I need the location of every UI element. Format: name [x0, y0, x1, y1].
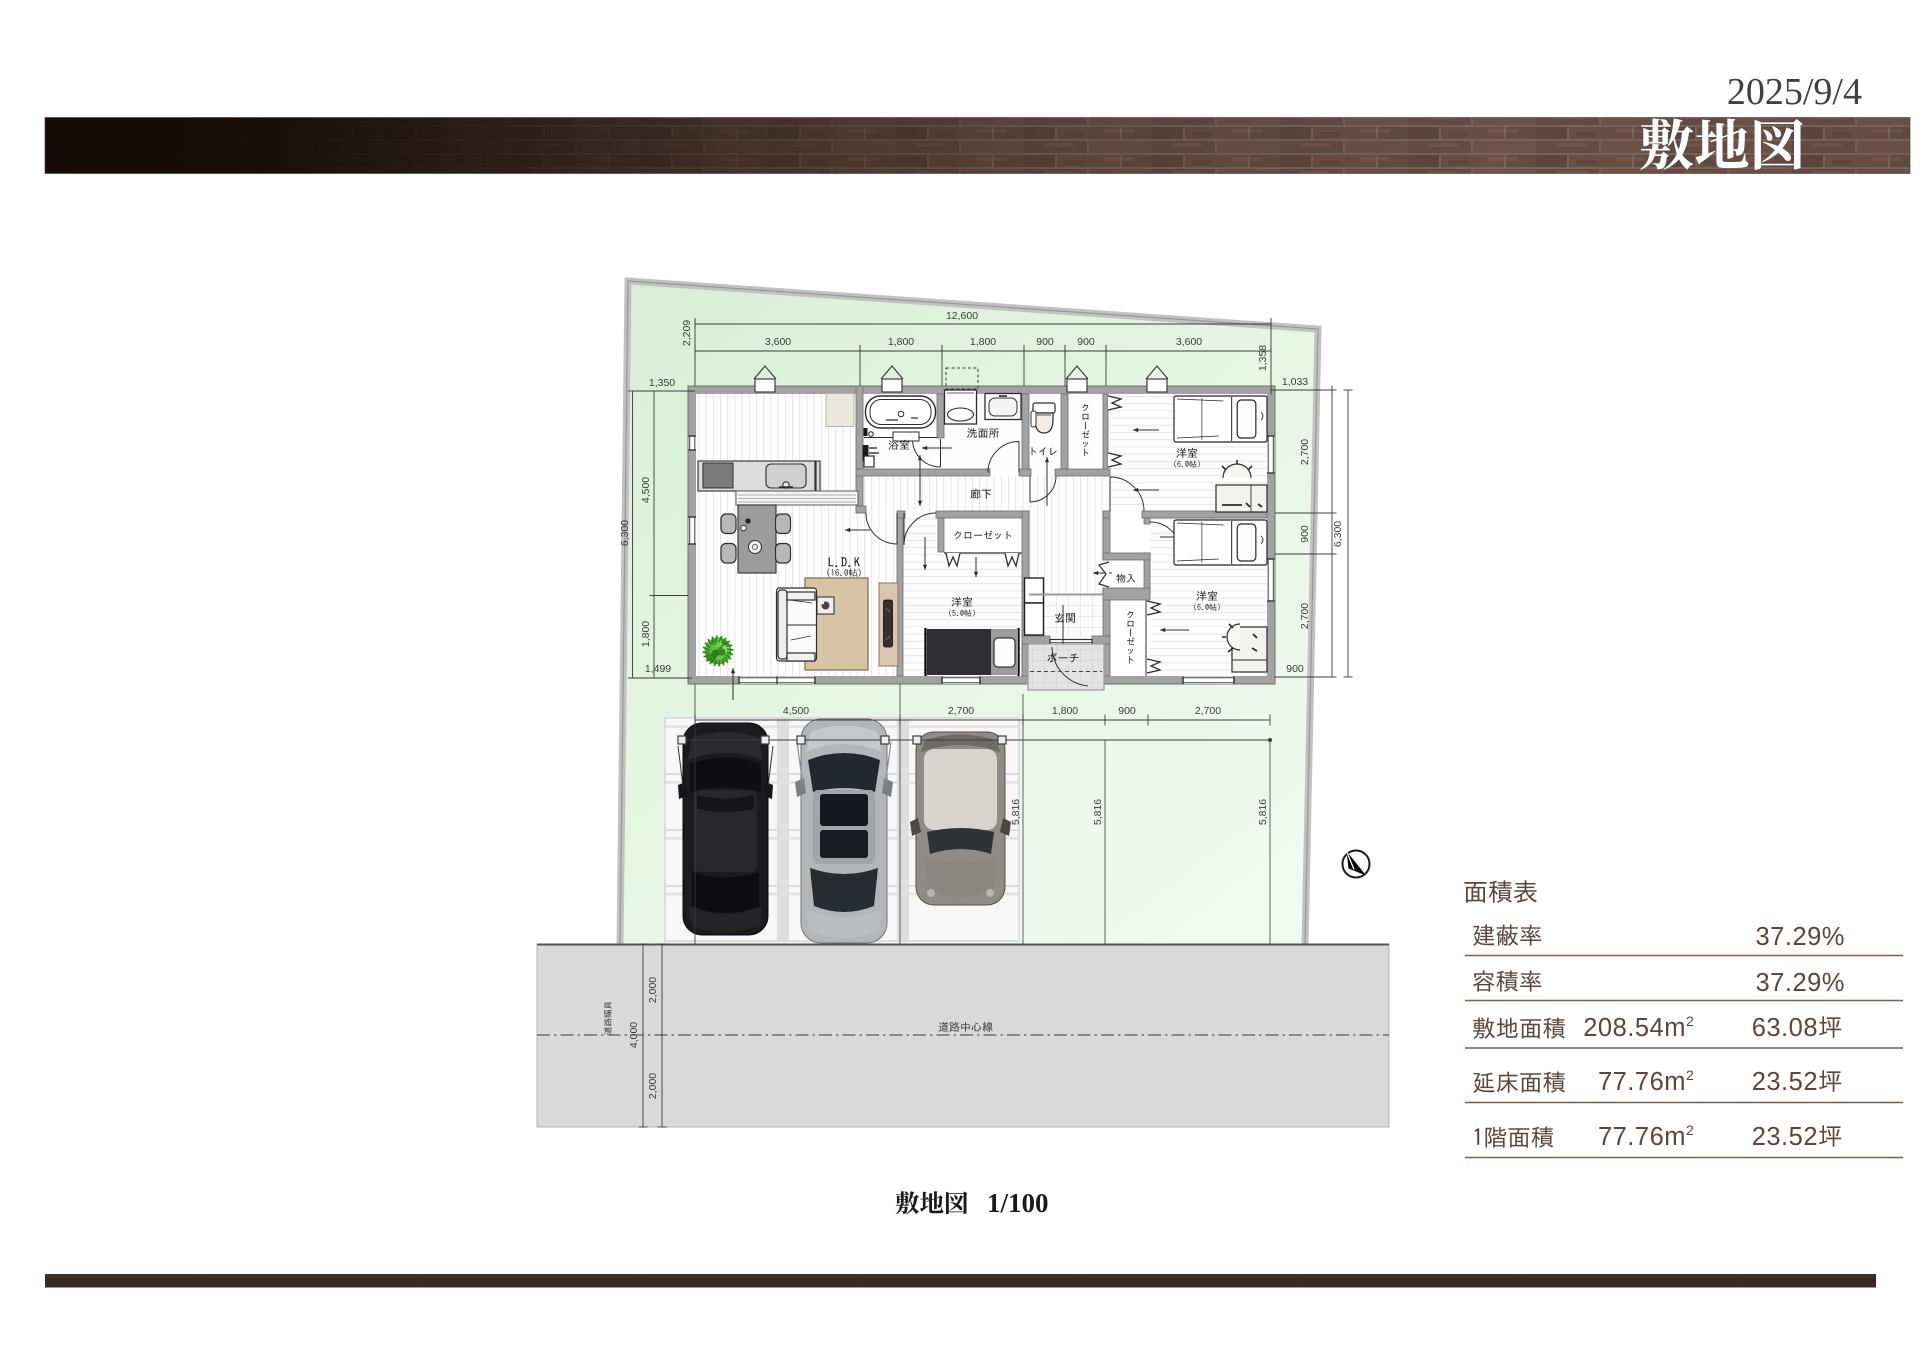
svg-text:2,000: 2,000: [647, 977, 659, 1003]
svg-text:3,600: 3,600: [765, 336, 791, 348]
svg-text:23.52: 23.52: [1752, 1068, 1818, 1096]
svg-text:1,033: 1,033: [1282, 376, 1308, 388]
svg-text:6,300: 6,300: [619, 520, 631, 546]
svg-text:1,800: 1,800: [888, 336, 914, 348]
svg-text:2,700: 2,700: [1299, 439, 1311, 465]
svg-text:1,800: 1,800: [970, 336, 996, 348]
svg-text:63.08: 63.08: [1752, 1014, 1818, 1042]
svg-text:2: 2: [1686, 1067, 1694, 1083]
svg-text:12,600: 12,600: [946, 310, 978, 322]
svg-text:2: 2: [1686, 1013, 1694, 1029]
svg-text:900: 900: [1036, 336, 1054, 348]
svg-text:5,816: 5,816: [1257, 799, 1269, 825]
svg-text:900: 900: [1286, 663, 1304, 675]
svg-text:1/100: 1/100: [987, 1188, 1049, 1218]
svg-text:4,500: 4,500: [640, 477, 652, 503]
svg-text:1,800: 1,800: [1052, 705, 1078, 717]
svg-text:2025/9/4: 2025/9/4: [1727, 71, 1862, 113]
svg-text:2,700: 2,700: [1299, 603, 1311, 629]
svg-text:5,816: 5,816: [1010, 799, 1022, 825]
svg-text:2,700: 2,700: [1195, 705, 1221, 717]
svg-text:5,816: 5,816: [1092, 799, 1104, 825]
svg-text:4,000: 4,000: [628, 1022, 640, 1048]
svg-text:2,000: 2,000: [647, 1073, 659, 1099]
svg-text:4,500: 4,500: [783, 705, 809, 717]
svg-text:2,209: 2,209: [681, 320, 693, 346]
svg-text:900: 900: [1299, 525, 1311, 543]
svg-text:37.29%: 37.29%: [1756, 923, 1846, 951]
svg-text:1,358: 1,358: [1257, 345, 1269, 371]
svg-text:208.54m: 208.54m: [1583, 1014, 1686, 1042]
svg-text:2,700: 2,700: [948, 705, 974, 717]
svg-text:2: 2: [1686, 1122, 1694, 1138]
svg-text:1,350: 1,350: [649, 377, 675, 389]
svg-text:1,499: 1,499: [645, 663, 671, 675]
svg-text:6,300: 6,300: [1332, 521, 1344, 547]
svg-text:23.52: 23.52: [1752, 1123, 1818, 1151]
svg-text:37.29%: 37.29%: [1756, 969, 1846, 997]
svg-text:77.76m: 77.76m: [1598, 1068, 1686, 1096]
svg-text:77.76m: 77.76m: [1598, 1123, 1686, 1151]
svg-text:900: 900: [1077, 336, 1095, 348]
svg-text:1,800: 1,800: [640, 621, 652, 647]
svg-text:3,600: 3,600: [1176, 336, 1202, 348]
svg-text:900: 900: [1118, 705, 1136, 717]
